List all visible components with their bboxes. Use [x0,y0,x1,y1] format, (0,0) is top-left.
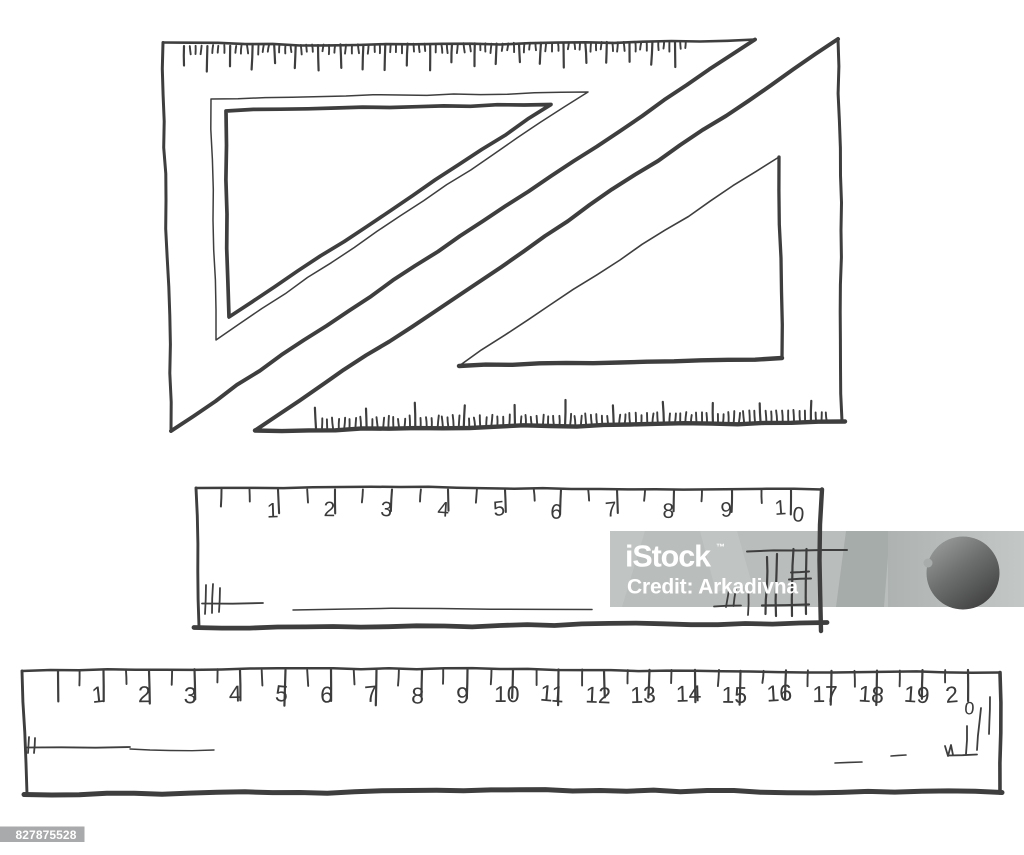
svg-text:7: 7 [363,680,378,707]
svg-text:3: 3 [380,498,393,522]
svg-text:17: 17 [812,681,838,707]
svg-text:10: 10 [494,681,520,707]
svg-text:9: 9 [720,498,733,522]
svg-text:3: 3 [183,682,197,708]
svg-text:11: 11 [539,680,565,708]
svg-text:iStock: iStock [625,540,711,574]
svg-text:4: 4 [437,498,450,522]
svg-text:1: 1 [774,496,787,520]
svg-text:16: 16 [766,679,793,707]
svg-text:18: 18 [858,680,885,708]
svg-text:5: 5 [274,680,289,707]
svg-text:Credit: Arkadivna: Credit: Arkadivna [627,576,798,599]
svg-text:0: 0 [964,698,975,719]
svg-text:1: 1 [90,681,105,708]
svg-text:2: 2 [323,498,335,521]
svg-text:7: 7 [604,498,618,522]
svg-text:4: 4 [228,680,242,706]
svg-text:0: 0 [792,503,806,527]
svg-text:6: 6 [320,681,334,707]
svg-text:15: 15 [721,682,747,708]
svg-text:8: 8 [411,682,425,708]
svg-text:™: ™ [716,542,725,552]
svg-text:13: 13 [630,681,656,708]
svg-text:2: 2 [138,681,151,707]
svg-text:8: 8 [662,500,674,523]
svg-text:827875528: 827875528 [16,828,77,842]
svg-text:12: 12 [585,681,612,708]
svg-text:2: 2 [944,681,959,708]
svg-text:5: 5 [492,497,506,521]
svg-text:14: 14 [675,680,702,707]
svg-text:6: 6 [550,500,563,524]
svg-text:1: 1 [266,499,278,522]
svg-text:9: 9 [456,682,470,708]
svg-text:19: 19 [903,681,930,709]
